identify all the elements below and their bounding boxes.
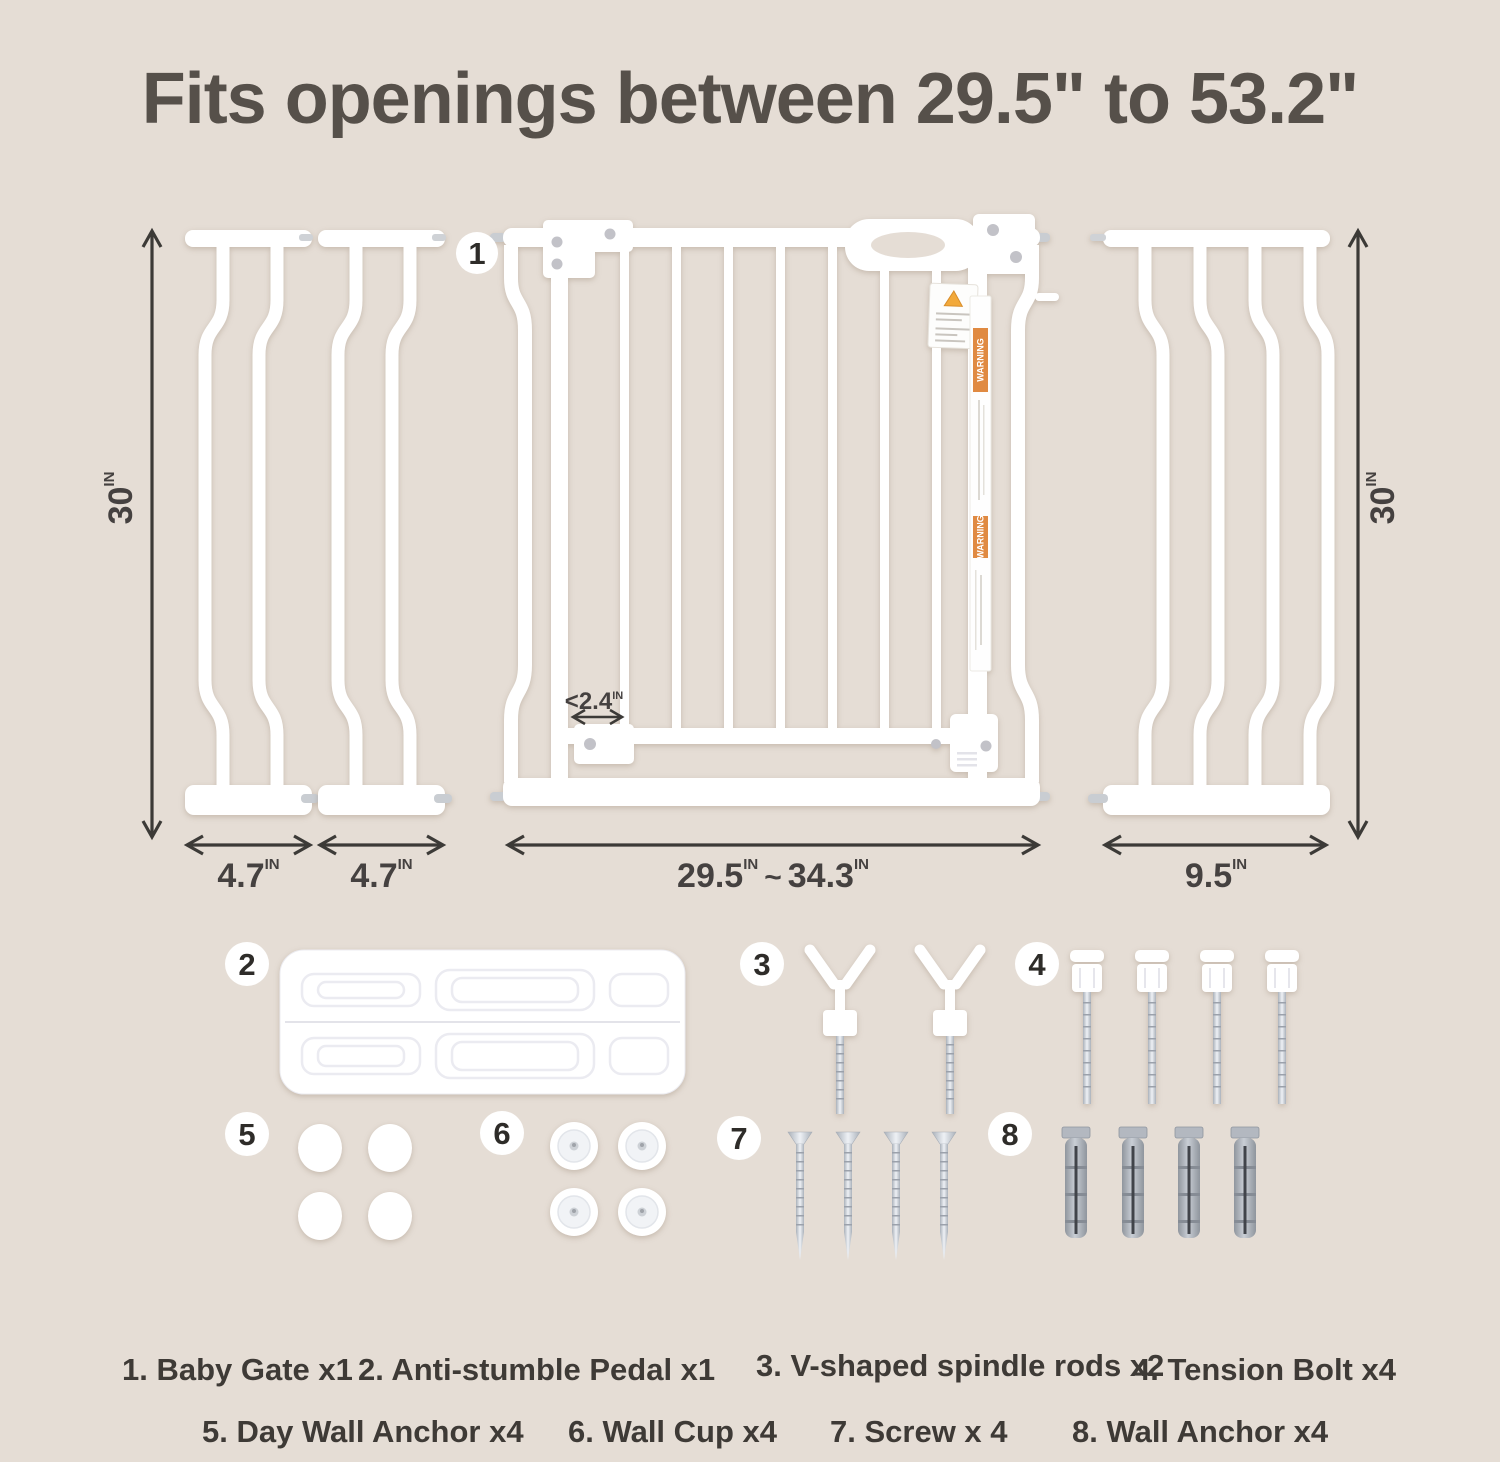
screw: [836, 1132, 860, 1260]
gate-door-bars: [620, 246, 941, 730]
legend-item-pedal: 2. Anti-stumble Pedal x1: [358, 1352, 715, 1388]
screws: [788, 1132, 956, 1260]
anti-stumble-pedal: [280, 950, 685, 1094]
day-wall-anchors: [298, 1124, 412, 1240]
legend-item-spindle-rods: 3. V-shaped spindle rods x2: [756, 1348, 1164, 1384]
gate-frame-left-post: [511, 245, 525, 782]
part-badge-6: 6: [480, 1111, 524, 1155]
svg-text:7: 7: [730, 1121, 747, 1156]
extension-panel-large: [1088, 230, 1330, 815]
wall-cup: [618, 1188, 666, 1236]
extension-panel-small-2: [318, 230, 452, 815]
product-diagram-image: Fits openings between 29.5" to 53.2": [0, 0, 1500, 1462]
dim-label-ext-a: 4.7IN: [185, 856, 312, 896]
svg-text:8: 8: [1001, 1117, 1018, 1152]
gate-hinge-bracket-bottom: [574, 724, 634, 764]
height-dimension-arrow-right: [1349, 231, 1367, 837]
part-badge-8: 8: [988, 1112, 1032, 1156]
dim-label-gate-width: 29.5IN~34.3IN: [508, 856, 1038, 896]
day-wall-anchor: [368, 1192, 412, 1240]
part-badge-5: 5: [225, 1112, 269, 1156]
wall-anchor: [1231, 1127, 1259, 1238]
parts-diagram: 2 3: [0, 920, 1500, 1280]
v-spindle-rod: [920, 950, 980, 1114]
dim-label-ext-b: 4.7IN: [318, 856, 445, 896]
wall-anchors: [1062, 1127, 1259, 1238]
part-badge-3: 3: [740, 942, 784, 986]
page-title: Fits openings between 29.5" to 53.2": [0, 58, 1500, 140]
screw: [884, 1132, 908, 1260]
dim-label-ext-right: 9.5IN: [1105, 856, 1327, 896]
width-arrow-ext-b: [320, 836, 443, 854]
svg-text:3: 3: [753, 947, 770, 982]
gate-handle: [845, 214, 1035, 274]
tension-bolt: [1200, 950, 1234, 1104]
svg-text:2: 2: [238, 947, 255, 982]
wall-cup: [550, 1188, 598, 1236]
wall-anchor: [1175, 1127, 1203, 1238]
legend-item-baby-gate: 1. Baby Gate x1: [122, 1352, 353, 1388]
day-wall-anchor: [368, 1124, 412, 1172]
width-arrow-gate: [508, 836, 1038, 854]
width-arrow-ext-right: [1105, 836, 1326, 854]
warning-strip-label: WARNING: [976, 338, 986, 382]
part-badge-2: 2: [225, 942, 269, 986]
v-shaped-spindle-rods: [810, 950, 980, 1114]
wall-anchor: [1119, 1127, 1147, 1238]
legend-item-day-wall-anchor: 5. Day Wall Anchor x4: [202, 1414, 524, 1450]
dim-label-right-height: 30IN: [1363, 463, 1403, 533]
part-badge-1: 1: [456, 232, 498, 274]
gate-bottom-bar: [503, 778, 1040, 806]
screw: [932, 1132, 956, 1260]
svg-text:4: 4: [1028, 947, 1046, 982]
gate-hinge-bracket-top: [543, 220, 633, 278]
legend-item-wall-anchor: 8. Wall Anchor x4: [1072, 1414, 1328, 1450]
part-badge-7: 7: [717, 1116, 761, 1160]
day-wall-anchor: [298, 1124, 342, 1172]
tension-bolts: [1070, 950, 1299, 1104]
tension-bolt: [1135, 950, 1169, 1104]
gate-diagram: WARNING WARNING 1: [0, 200, 1500, 920]
warning-strip-label: WARNING: [976, 515, 986, 559]
tension-bolt: [1265, 950, 1299, 1104]
legend-item-screw: 7. Screw x 4: [830, 1414, 1008, 1450]
legend-item-tension-bolt: 4. Tension Bolt x4: [1133, 1352, 1396, 1388]
dim-label-bar-gap: <2.4IN: [552, 688, 636, 716]
svg-text:1: 1: [468, 236, 485, 271]
width-arrow-ext-a: [187, 836, 310, 854]
gate-frame-right-post: [1018, 245, 1032, 782]
extension-panel-small-1: [185, 230, 319, 815]
wall-cups: [550, 1122, 666, 1236]
warning-strip: WARNING WARNING: [970, 296, 991, 671]
screw: [788, 1132, 812, 1260]
tension-bolt: [1070, 950, 1104, 1104]
svg-text:6: 6: [493, 1116, 510, 1151]
v-spindle-rod: [810, 950, 870, 1114]
part-badge-4: 4: [1015, 942, 1059, 986]
wall-cup: [618, 1122, 666, 1170]
wall-anchor: [1062, 1127, 1090, 1238]
height-dimension-arrow-left: [143, 231, 161, 837]
legend-item-wall-cup: 6. Wall Cup x4: [568, 1414, 777, 1450]
svg-text:5: 5: [238, 1117, 255, 1152]
dim-label-left-height: 30IN: [101, 463, 141, 533]
wall-cup: [550, 1122, 598, 1170]
day-wall-anchor: [298, 1192, 342, 1240]
